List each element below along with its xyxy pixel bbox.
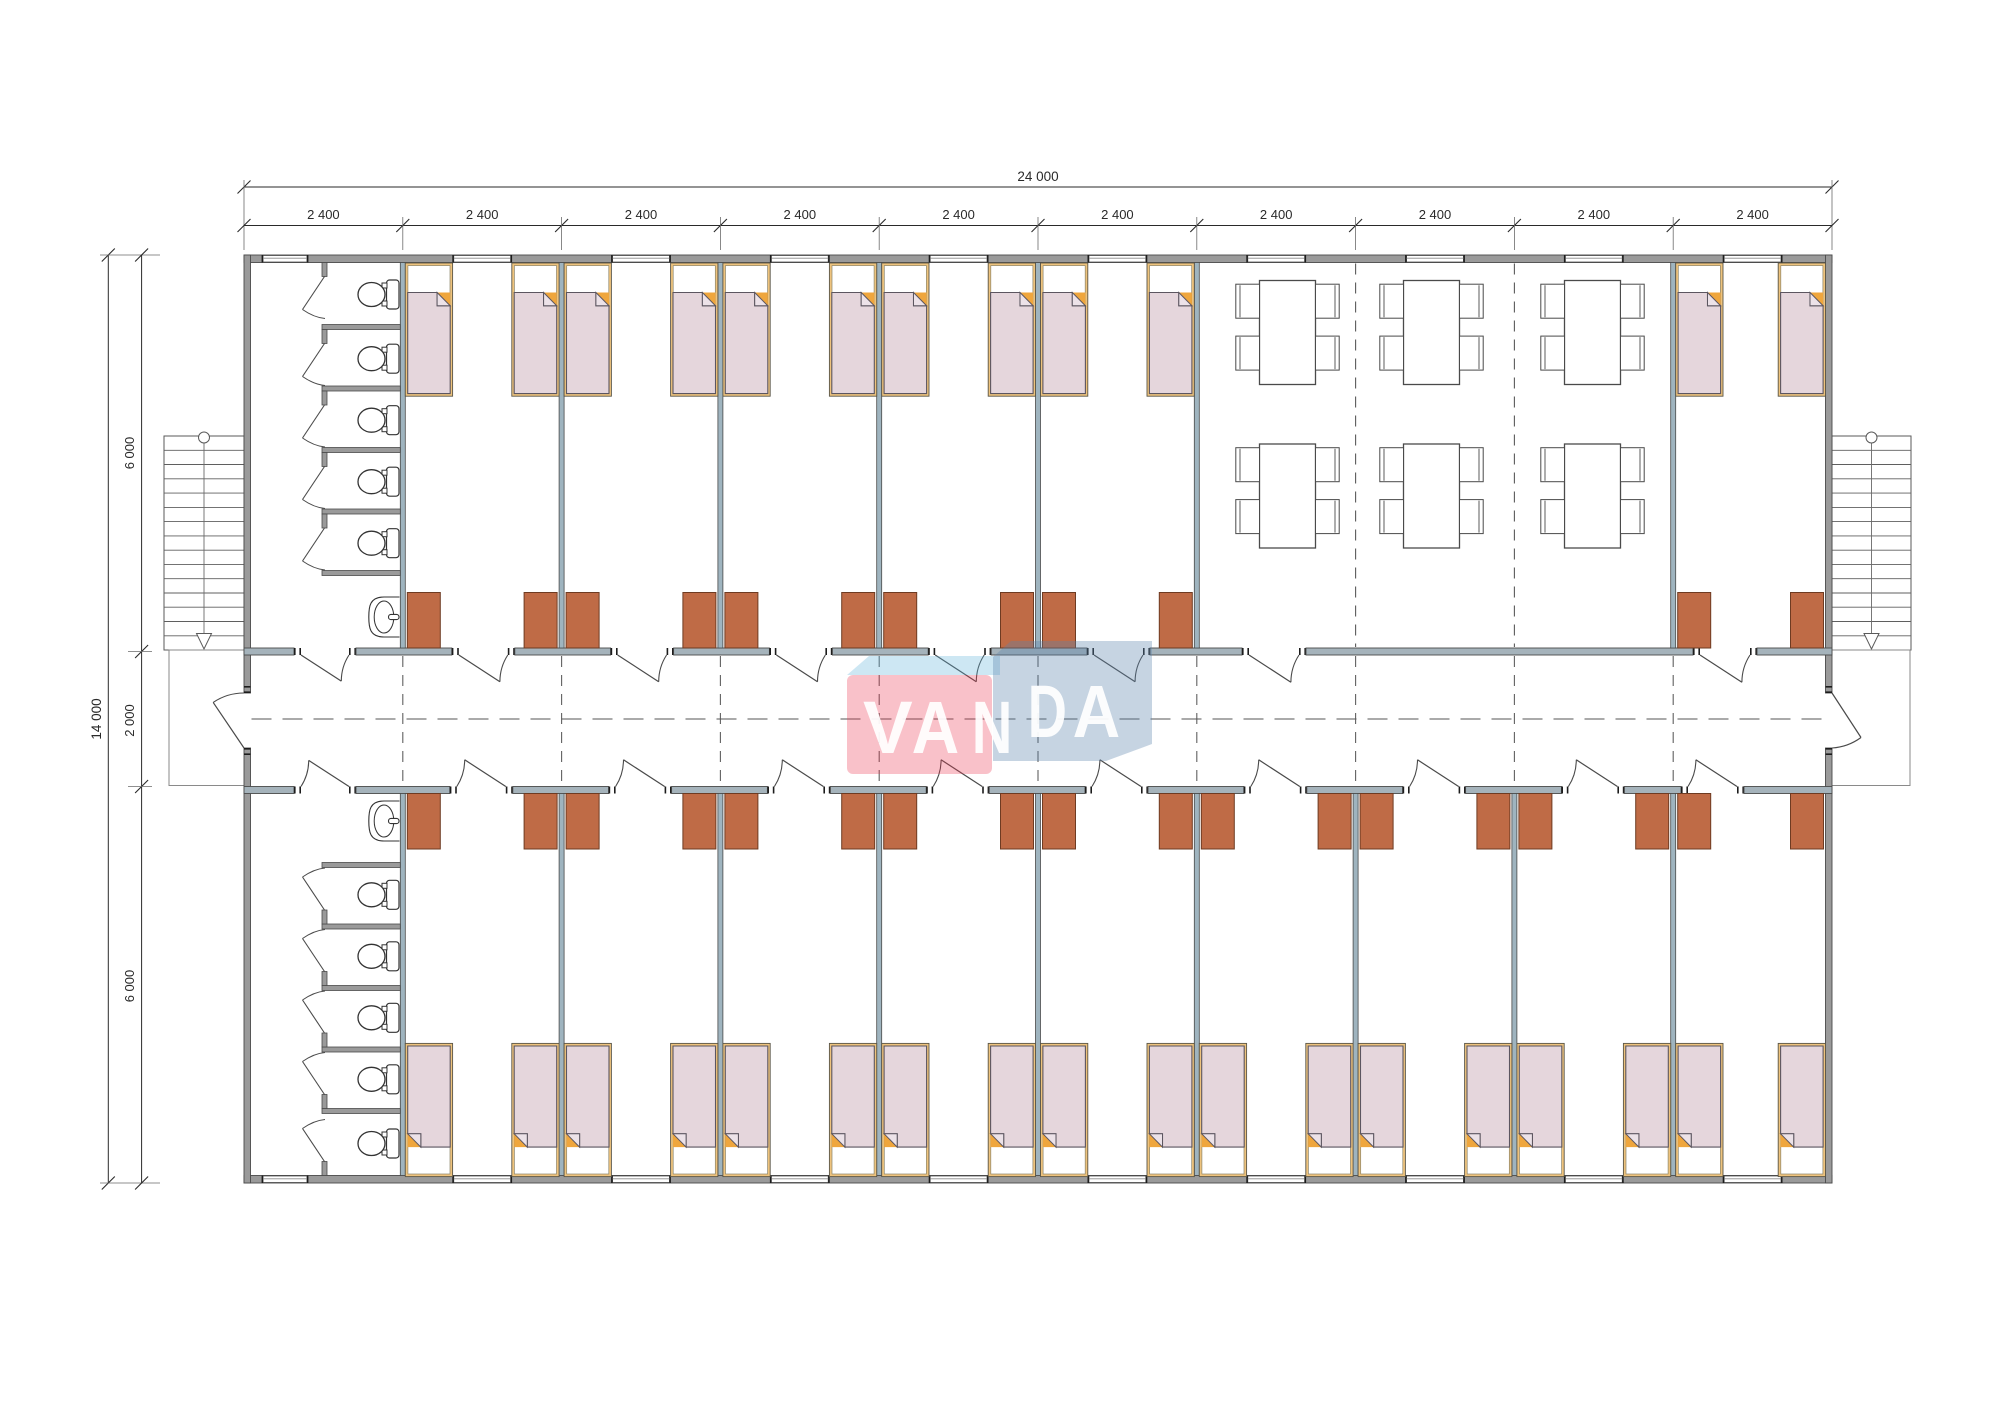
svg-text:2 400: 2 400 [784, 207, 817, 222]
svg-text:A: A [1073, 670, 1121, 753]
svg-text:2 000: 2 000 [122, 704, 137, 737]
svg-text:V: V [863, 686, 913, 769]
svg-text:2 400: 2 400 [307, 207, 340, 222]
svg-text:2 400: 2 400 [466, 207, 499, 222]
svg-text:2 400: 2 400 [1578, 207, 1611, 222]
svg-text:14 000: 14 000 [89, 698, 104, 739]
svg-text:2 400: 2 400 [1419, 207, 1452, 222]
svg-text:A: A [912, 686, 960, 769]
svg-text:2 400: 2 400 [1260, 207, 1293, 222]
svg-text:2 400: 2 400 [1736, 207, 1769, 222]
svg-text:6 000: 6 000 [122, 970, 137, 1003]
svg-text:D: D [1028, 670, 1067, 753]
svg-text:6 000: 6 000 [122, 437, 137, 470]
svg-text:24 000: 24 000 [1017, 169, 1058, 184]
svg-text:2 400: 2 400 [625, 207, 658, 222]
svg-text:N: N [972, 686, 1013, 769]
svg-text:2 400: 2 400 [942, 207, 975, 222]
svg-text:2 400: 2 400 [1101, 207, 1134, 222]
